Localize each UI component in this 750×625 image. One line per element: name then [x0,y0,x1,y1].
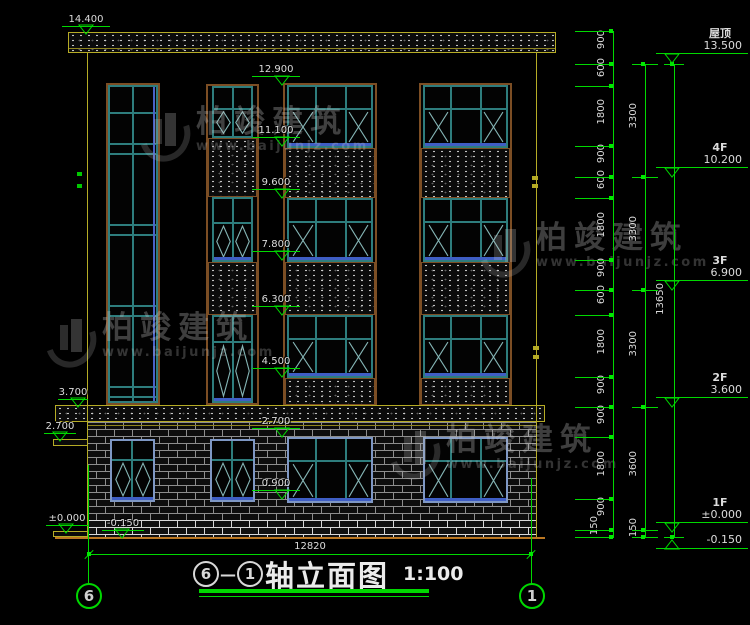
axis-bubble-6: 6 [76,583,102,609]
window-3f-b [212,197,253,262]
level-triangle-icon [70,397,86,408]
casement-x-symbol [428,111,449,143]
window-2f-d [423,315,508,378]
level-triangle-icon [664,53,680,64]
dim-dot [641,175,645,179]
window-mullion [232,317,234,401]
window-mullion [450,87,452,146]
casement-x-symbol [428,224,449,257]
dim-value: 1800 [596,99,607,124]
spandrel-panel [208,262,257,315]
spandrel-panel [421,378,510,405]
window-sill [212,497,253,500]
window-mullion [450,439,452,501]
dim-tick-line [664,64,684,65]
window-mullion [132,87,134,401]
window-rail [289,108,371,110]
window-sill [425,373,506,376]
window-rail [110,153,156,155]
level-triangle-icon [274,367,290,378]
dim-dot [609,497,613,501]
diamond-symbol [216,344,231,398]
window-mullion [450,200,452,260]
title-separator: — [220,565,236,584]
dim-line [645,64,646,537]
floor-value: 13.500 [656,40,748,53]
floor-marker-3f: 3F 6.900 [656,254,748,281]
casement-x-symbol [348,463,369,498]
window-mullion [480,200,482,260]
title-scale: 1:100 [403,563,463,585]
dim-dot [529,552,533,556]
level-triangle-icon [52,431,68,442]
level-triangle-icon [274,305,290,316]
dim-dot [641,288,645,292]
roof-band-inner-line [69,48,555,49]
level-triangle-icon [664,539,680,550]
dim-dot [609,405,613,409]
window-rail [214,341,251,343]
spandrel-panel [285,262,375,315]
window-mullion [232,88,234,136]
dim-dot [609,144,613,148]
dim-tick-line [632,290,658,291]
dim-dot [609,84,613,88]
window-rail [425,108,506,110]
level-triangle-icon [664,397,680,408]
spandrel-panel [285,378,375,405]
dim-dot [87,552,91,556]
window-1f-a [110,439,155,502]
level-triangle-icon [58,523,74,534]
dim-tick-line [632,177,658,178]
dim-dot [609,175,613,179]
window-rail [425,338,506,340]
dim-dot [609,288,613,292]
window-blue-edge [153,87,155,401]
casement-x-symbol [483,341,504,373]
axis-number: 1 [527,587,537,605]
window-sill [425,257,506,260]
brick-top-line [87,425,536,426]
window-mullion [232,199,234,260]
dim-dot [609,313,613,317]
dim-tick-line [632,407,658,408]
dim-value: 3300 [628,103,639,128]
window-mullion [315,200,317,260]
dim-dot [641,405,645,409]
dim-tick-line [632,530,658,531]
dim-tick-line [632,537,658,538]
window-mullion [131,441,133,500]
watermark-logo-icon [44,312,98,370]
window-4f-b [212,86,253,138]
casement-x-symbol [428,463,449,498]
window-sill [289,143,371,146]
diamond-symbol [216,225,231,258]
window-mullion [345,87,347,146]
floor-marker-4f: 4F 10.200 [656,141,748,168]
window-2f-b [212,315,253,403]
window-mullion [315,317,317,376]
level-triangle-icon [274,188,290,199]
floor-value: 6.900 [656,267,748,280]
dim-value: 600 [596,285,607,304]
level-triangle-icon [274,250,290,261]
dim-dot [609,528,613,532]
dim-dot [641,62,645,66]
casement-x-symbol [483,224,504,257]
wall-mark [532,176,538,180]
window-rail [110,224,156,226]
level-triangle-icon [274,489,290,500]
dim-value: 3300 [628,216,639,241]
diamond-symbol [235,225,250,258]
window-sill [289,498,371,501]
axis-number: 6 [84,587,94,605]
window-rail [110,386,156,388]
diamond-symbol [216,111,231,134]
dim-tick-line [89,554,531,555]
diamond-symbol [215,462,231,497]
level-triangle-icon [78,24,94,35]
level-triangle-icon [114,528,130,539]
floor-marker-roof: 屋顶 13.500 [656,27,748,54]
dim-value: 3600 [628,451,639,476]
window-3f-c [287,198,373,262]
dim-value: 150 [589,516,600,535]
window-rail [212,459,253,461]
diamond-symbol [235,344,250,398]
floor-value: ±0.000 [656,509,748,522]
casement-x-symbol [348,111,369,143]
window-sill [425,143,506,146]
floor-marker-2f: 2F 3.600 [656,371,748,398]
title-underline-thin [199,596,429,597]
casement-x-symbol [348,341,369,373]
window-rail [110,234,156,236]
dim-value: 150 [628,518,639,537]
window-rail [289,460,371,462]
stair-window [108,85,158,403]
window-1f-b [210,439,255,502]
window-mullion [480,439,482,501]
window-rail [289,221,371,223]
casement-x-symbol [348,224,369,257]
dim-value: 1800 [596,451,607,476]
window-rail [214,222,251,224]
window-rail [110,315,156,317]
window-rail [112,459,153,461]
window-4f-d [423,85,508,148]
dim-dot [609,62,613,66]
spandrel-panel [285,148,375,198]
dim-dot [609,375,613,379]
axis-bubble-1: 1 [519,583,545,609]
dim-line [674,64,675,537]
level-triangle-icon [274,427,290,438]
watermark-brand: 柏竣建筑 [536,222,709,255]
dim-line [613,31,614,537]
window-rail [110,396,156,398]
floor-value: 3.600 [656,384,748,397]
window-sill [214,257,251,260]
roof-parapet-band [68,32,556,53]
dim-tick-line [632,64,658,65]
wall-mark [77,184,82,188]
floor-marker-1f: 1F ±0.000 [656,496,748,523]
window-sill [425,498,506,501]
floor-value: 10.200 [656,154,748,167]
dim-dot [641,535,645,539]
level-triangle-icon [274,75,290,86]
window-mullion [480,87,482,146]
title-axis-end: 1 [237,561,263,587]
dim-dot [641,528,645,532]
casement-x-symbol [428,341,449,373]
window-sill [214,398,251,401]
window-rail [425,460,506,462]
dim-line [88,465,89,584]
window-4f-c [287,85,373,148]
window-rail [110,143,156,145]
window-3f-d [423,198,508,262]
dim-value: 3300 [628,331,639,356]
floor-slab-band [55,405,545,422]
diamond-symbol [115,462,131,497]
window-mullion [345,439,347,501]
dim-dot [609,29,613,33]
dim-dot [609,196,613,200]
window-mullion [315,439,317,501]
window-mullion [315,87,317,146]
wall-right-edge [536,53,537,537]
window-sill [112,497,153,500]
level-triangle-icon [664,522,680,533]
dim-dot [609,535,613,539]
spandrel-panel [208,138,257,197]
wall-mark [532,184,538,188]
wall-mark [533,355,539,359]
overall-width-dim: 12820 [270,541,350,552]
dim-value: 600 [596,58,607,77]
wall-mark [533,346,539,350]
window-mullion [231,441,233,500]
window-mullion [345,200,347,260]
window-rail [425,221,506,223]
window-rail [110,112,156,114]
window-sill [289,373,371,376]
window-1f-c [287,437,373,503]
dim-dot [609,258,613,262]
wall-mark [77,172,82,176]
casement-x-symbol [483,111,504,143]
level-triangle-icon [664,167,680,178]
title-axis-start: 6 [193,561,219,587]
window-rail [214,108,251,110]
window-mullion [450,317,452,376]
window-rail [289,338,371,340]
window-mullion [480,317,482,376]
dim-value: 600 [596,170,607,189]
level-triangle-icon [664,280,680,291]
dim-line [531,478,532,584]
window-1f-d [423,437,508,503]
dim-value: 900 [596,30,607,49]
diamond-symbol [235,462,251,497]
dim-value: 1800 [596,212,607,237]
dim-tick-line [664,537,684,538]
casement-x-symbol [483,463,504,498]
window-mullion [345,317,347,376]
spandrel-panel [421,262,510,315]
elevation-drawing: 柏竣建筑www.baijunjz.com 柏竣建筑www.baijunjz.co… [0,0,750,625]
spandrel-panel [421,148,510,198]
dim-value: 1800 [596,329,607,354]
level-triangle-icon [274,136,290,147]
window-sill [289,257,371,260]
diamond-symbol [235,111,250,134]
title-underline-thick [199,589,429,593]
window-rail [110,305,156,307]
diamond-symbol [135,462,151,497]
dim-dot [609,435,613,439]
